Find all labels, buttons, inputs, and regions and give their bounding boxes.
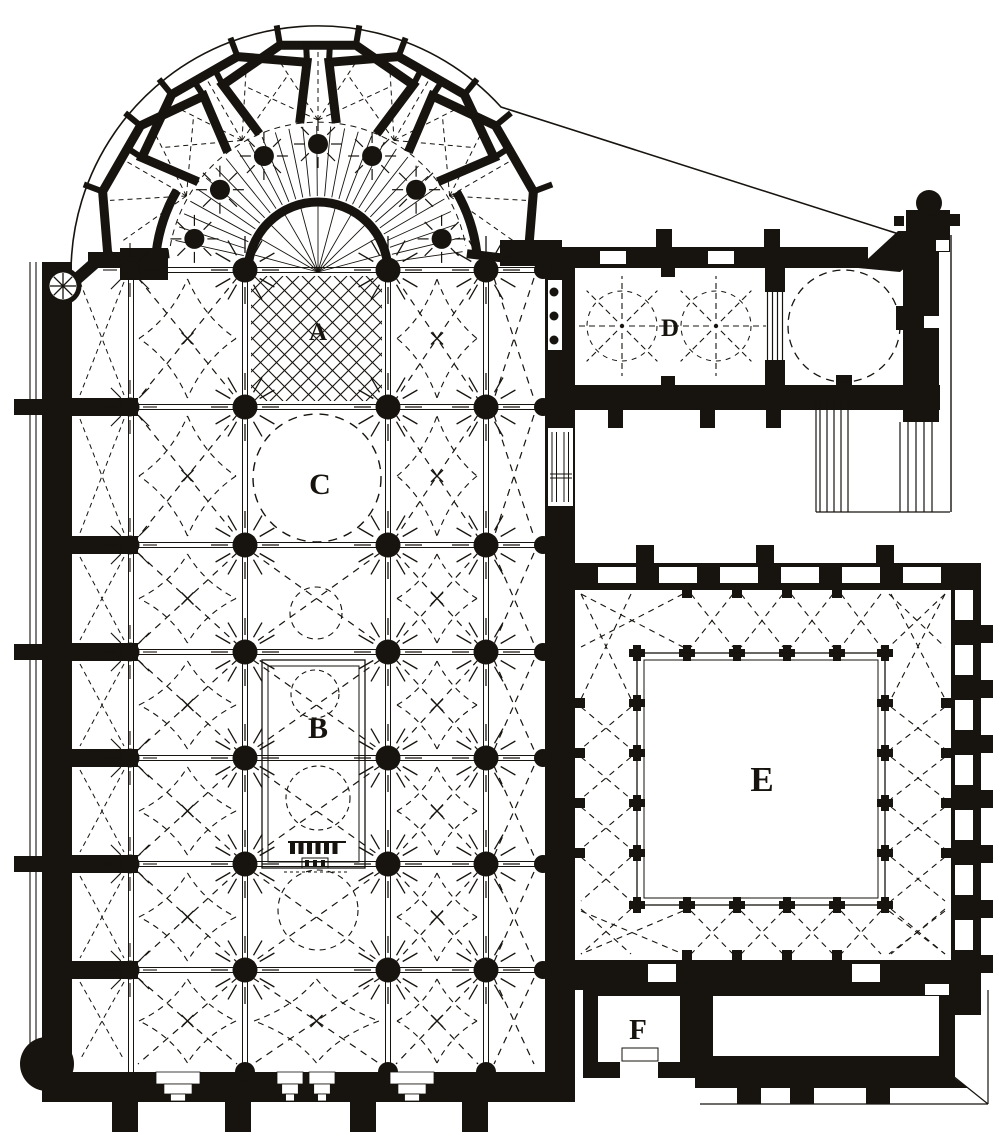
pier-spike bbox=[457, 390, 472, 399]
nave-pier bbox=[376, 258, 401, 283]
pier-spike bbox=[216, 279, 231, 288]
walk-respond bbox=[732, 588, 742, 598]
corridor-window bbox=[708, 251, 734, 264]
star-vault-rib bbox=[721, 331, 752, 362]
pier-spike bbox=[254, 560, 263, 575]
pier-spike bbox=[495, 729, 504, 744]
nave-pier bbox=[474, 958, 499, 983]
pier-spike bbox=[495, 667, 504, 682]
pier-spike bbox=[397, 516, 406, 531]
cloister-buttress bbox=[981, 845, 993, 863]
room-f-threshold bbox=[622, 1048, 658, 1061]
pier-spike bbox=[327, 127, 335, 135]
pier-spike bbox=[371, 879, 380, 894]
chapel-buttress bbox=[497, 113, 511, 124]
pier-spike bbox=[469, 516, 478, 531]
pier-spike bbox=[457, 847, 472, 856]
organ-pipe bbox=[305, 860, 309, 866]
pier-spike bbox=[403, 279, 418, 288]
chapel-rib bbox=[164, 140, 242, 147]
pier-spike bbox=[260, 953, 275, 962]
cloister-vault bbox=[691, 911, 733, 954]
pier-spike bbox=[397, 422, 406, 437]
wall-dot bbox=[550, 288, 559, 297]
pier-spike bbox=[457, 873, 472, 882]
wall-respond-pier bbox=[534, 855, 552, 873]
chapel-buttress bbox=[535, 184, 552, 190]
chapel-buttress bbox=[466, 79, 477, 93]
pier-spike bbox=[501, 979, 516, 988]
pier-spike bbox=[260, 979, 275, 988]
pier-spike bbox=[216, 554, 231, 563]
pier-spike bbox=[495, 378, 504, 393]
wall-respond-pier bbox=[534, 643, 552, 661]
apse-spoke bbox=[318, 255, 382, 272]
pier-spike bbox=[111, 526, 121, 536]
pier-spike bbox=[403, 390, 418, 399]
pier-spike bbox=[254, 667, 263, 682]
pier-spike bbox=[260, 279, 275, 288]
cloister-vault bbox=[581, 594, 631, 699]
pier-spike bbox=[111, 416, 121, 426]
pier-spike bbox=[403, 979, 418, 988]
pier-spike bbox=[359, 416, 374, 425]
pier-spike bbox=[403, 661, 418, 670]
pier-spike bbox=[139, 633, 149, 643]
pier-spike bbox=[403, 635, 418, 644]
cloister-buttress bbox=[981, 735, 993, 753]
pier-spike bbox=[228, 879, 237, 894]
cloister-window bbox=[955, 865, 973, 895]
pier-spike bbox=[139, 739, 149, 749]
pier-spike bbox=[254, 729, 263, 744]
ambulatory-pier bbox=[362, 146, 382, 166]
hall-interior bbox=[713, 996, 939, 1056]
choir-enclosure bbox=[262, 660, 365, 868]
cloister-buttress bbox=[756, 545, 774, 563]
ambulatory-pier bbox=[432, 229, 452, 249]
cloister-vault bbox=[581, 594, 683, 647]
walk-respond bbox=[732, 950, 742, 960]
turret-knob bbox=[916, 190, 942, 216]
cloister-window bbox=[955, 645, 973, 675]
pier-spike bbox=[359, 635, 374, 644]
pier-spike bbox=[228, 667, 237, 682]
pier-spike bbox=[359, 661, 374, 670]
nave-pier bbox=[376, 395, 401, 420]
pier-spike bbox=[228, 941, 237, 956]
pier-spike bbox=[501, 741, 516, 750]
west-aisle-wall bbox=[42, 262, 72, 1075]
portal-step bbox=[314, 1084, 331, 1094]
pier-spike bbox=[495, 835, 504, 850]
pier-spike bbox=[371, 560, 380, 575]
pier-spike bbox=[216, 253, 231, 262]
portal-step bbox=[309, 1072, 335, 1084]
pier-spike bbox=[111, 979, 121, 989]
ambulatory-pier bbox=[210, 180, 230, 200]
cloister-window bbox=[955, 810, 973, 840]
pier-spike bbox=[111, 661, 121, 671]
pier-spike bbox=[355, 165, 363, 173]
pier-spike bbox=[425, 248, 433, 256]
south-facade-wall bbox=[42, 1072, 575, 1102]
cloister-window bbox=[852, 964, 880, 982]
pier-spike bbox=[359, 847, 374, 856]
pier-spike bbox=[204, 248, 212, 256]
pier-spike bbox=[260, 635, 275, 644]
pier-spike bbox=[495, 941, 504, 956]
pier-spike bbox=[457, 953, 472, 962]
chapter-circle bbox=[788, 270, 900, 382]
pier-spike bbox=[501, 635, 516, 644]
ambulatory-pier bbox=[254, 146, 274, 166]
pier-spike bbox=[501, 767, 516, 776]
chapel-wall bbox=[156, 191, 177, 253]
pier-spike bbox=[139, 767, 149, 777]
walk-respond bbox=[782, 588, 792, 598]
wall-respond-pier bbox=[534, 398, 552, 416]
ambulatory-fan-rib bbox=[303, 127, 310, 197]
respond-pier bbox=[121, 261, 140, 280]
star-vault-rib bbox=[587, 331, 618, 362]
buttress bbox=[14, 644, 42, 660]
pier-spike bbox=[177, 222, 185, 230]
room-label-c: C bbox=[309, 468, 331, 501]
nave-pier bbox=[233, 395, 258, 420]
pier-spike bbox=[397, 667, 406, 682]
wall-respond-pier bbox=[534, 536, 552, 554]
cloister-buttress bbox=[876, 545, 894, 563]
pier-spike bbox=[425, 173, 433, 181]
pier-spike bbox=[457, 661, 472, 670]
apse-spoke bbox=[318, 208, 335, 272]
nave-pier bbox=[376, 958, 401, 983]
buttress bbox=[14, 856, 42, 872]
pier-spike bbox=[403, 847, 418, 856]
pier-spike bbox=[203, 199, 211, 207]
pier-spike bbox=[216, 661, 231, 670]
wall-window bbox=[924, 316, 939, 328]
nave-pier bbox=[474, 640, 499, 665]
chapel-buttress bbox=[84, 184, 101, 190]
walk-respond bbox=[575, 748, 585, 758]
pier-spike bbox=[371, 729, 380, 744]
chapel-buttress bbox=[159, 79, 170, 93]
cloister-buttress bbox=[981, 955, 993, 973]
pier-spike bbox=[501, 873, 516, 882]
facade-buttress bbox=[462, 1102, 488, 1132]
nave-pier bbox=[474, 746, 499, 771]
walk-respond bbox=[941, 798, 951, 808]
respond-pier bbox=[121, 961, 140, 980]
room-label-b: B bbox=[308, 712, 328, 745]
net-line bbox=[126, 276, 251, 401]
hall-buttress bbox=[737, 1088, 761, 1104]
ambulatory-pier bbox=[308, 134, 328, 154]
pier-spike bbox=[469, 667, 478, 682]
cathedral-floor-plan: A B C D E F bbox=[0, 0, 1000, 1139]
pier-spike bbox=[177, 248, 185, 256]
cloister-window bbox=[659, 567, 697, 583]
pier-spike bbox=[397, 560, 406, 575]
pier-spike bbox=[403, 741, 418, 750]
pier-spike bbox=[111, 951, 121, 961]
corner-turret bbox=[20, 1037, 74, 1091]
walk-respond bbox=[941, 748, 951, 758]
pier-spike bbox=[403, 416, 418, 425]
pier-spike bbox=[111, 554, 121, 564]
pier-spike bbox=[254, 422, 263, 437]
pier-spike bbox=[228, 560, 237, 575]
pier-spike bbox=[228, 729, 237, 744]
pier-spike bbox=[457, 741, 472, 750]
pier-spike bbox=[495, 422, 504, 437]
pier-spike bbox=[501, 390, 516, 399]
pier-spike bbox=[139, 873, 149, 883]
cloister-window bbox=[955, 755, 973, 785]
star-vault-rib bbox=[721, 291, 752, 322]
walk-respond bbox=[832, 950, 842, 960]
hall-buttress bbox=[790, 1088, 814, 1104]
vault-lierne bbox=[317, 1021, 380, 1063]
wall-respond-pier bbox=[534, 749, 552, 767]
pier-spike bbox=[216, 390, 231, 399]
ambulatory-fan-rib bbox=[384, 199, 445, 234]
pier-spike bbox=[501, 661, 516, 670]
pier-spike bbox=[425, 199, 433, 207]
pier-spike bbox=[457, 767, 472, 776]
net-line bbox=[142, 276, 267, 401]
portal-step bbox=[164, 1084, 192, 1094]
pier-spike bbox=[111, 845, 121, 855]
pier-spike bbox=[469, 422, 478, 437]
pier-spike bbox=[359, 979, 374, 988]
chapel-buttress bbox=[125, 113, 139, 124]
pier-spike bbox=[359, 279, 374, 288]
pier-spike bbox=[457, 554, 472, 563]
pier-spike bbox=[254, 879, 263, 894]
portal-step bbox=[282, 1084, 299, 1094]
cloister-window bbox=[648, 964, 676, 982]
pier-spike bbox=[397, 773, 406, 788]
pier-spike bbox=[273, 165, 281, 173]
pier-spike bbox=[216, 528, 231, 537]
star-vault-rib bbox=[681, 291, 712, 322]
chapel-rib bbox=[186, 118, 193, 196]
cloister-buttress bbox=[981, 900, 993, 918]
star-vault-rib bbox=[627, 331, 658, 362]
pier-spike bbox=[139, 554, 149, 564]
cloister-window bbox=[598, 567, 636, 583]
ambulatory-fan-rib bbox=[289, 129, 303, 198]
pier-spike bbox=[399, 173, 407, 181]
organ-pipe bbox=[316, 842, 321, 854]
cloister-vault bbox=[741, 911, 783, 954]
pier-spike bbox=[457, 635, 472, 644]
vault-lierne bbox=[397, 279, 437, 339]
pier-spike bbox=[501, 279, 516, 288]
chapel-vault-rib bbox=[80, 557, 124, 640]
cloister-buttress bbox=[981, 680, 993, 698]
pier-spike bbox=[301, 153, 309, 161]
pier-spike bbox=[397, 879, 406, 894]
pier-spike bbox=[403, 528, 418, 537]
pier-spike bbox=[216, 767, 231, 776]
grille-pier bbox=[765, 360, 785, 385]
walk-respond bbox=[575, 798, 585, 808]
portal-step bbox=[286, 1094, 295, 1101]
northeast-wall bbox=[903, 245, 939, 422]
pier-spike bbox=[371, 422, 380, 437]
wall-dot bbox=[550, 312, 559, 321]
east-nave-wall bbox=[545, 248, 575, 1075]
nave-pier bbox=[376, 746, 401, 771]
net-line bbox=[142, 276, 267, 401]
pier-spike bbox=[359, 953, 374, 962]
facade-buttress bbox=[112, 1102, 138, 1132]
pier-spike bbox=[254, 773, 263, 788]
nave-pier bbox=[474, 258, 499, 283]
cloister-vault bbox=[791, 911, 833, 954]
pier-spike bbox=[371, 773, 380, 788]
pier-spike bbox=[457, 979, 472, 988]
respond-pier bbox=[121, 398, 140, 417]
respond-pier bbox=[121, 749, 140, 768]
chapel-wall bbox=[457, 192, 477, 253]
star-vault-rib bbox=[587, 291, 618, 322]
pier-spike bbox=[495, 879, 504, 894]
pier-spike bbox=[495, 516, 504, 531]
walk-respond bbox=[941, 848, 951, 858]
chapel-wall bbox=[329, 57, 494, 182]
nave-pier bbox=[376, 533, 401, 558]
star-vault-rib bbox=[627, 291, 658, 322]
turret-step bbox=[894, 216, 904, 226]
portal-step bbox=[318, 1094, 327, 1101]
wall-respond-pier bbox=[534, 961, 552, 979]
respond-pier bbox=[121, 855, 140, 874]
room-label-d: D bbox=[661, 315, 679, 342]
room-f-door bbox=[620, 1062, 658, 1078]
nave-pier bbox=[233, 958, 258, 983]
choir-circle bbox=[286, 766, 350, 830]
cloister-window bbox=[955, 700, 973, 730]
organ-pipe bbox=[333, 842, 338, 854]
pier-spike bbox=[139, 951, 149, 961]
vault-lierne bbox=[437, 416, 477, 476]
nave-pier bbox=[474, 533, 499, 558]
pier-spike bbox=[371, 941, 380, 956]
pier-spike bbox=[495, 285, 504, 300]
portal-step bbox=[171, 1094, 186, 1101]
chapel-rib bbox=[242, 76, 287, 140]
pier-spike bbox=[457, 528, 472, 537]
pier-spike bbox=[260, 390, 275, 399]
pier-spike bbox=[451, 248, 459, 256]
cloister-buttress bbox=[981, 790, 993, 808]
corridor-window bbox=[600, 251, 626, 264]
cloister-buttress bbox=[636, 545, 654, 563]
d-room-respond bbox=[661, 268, 675, 277]
room-label-a: A bbox=[309, 319, 327, 346]
organ-pipe bbox=[313, 860, 317, 866]
nave-pier bbox=[233, 746, 258, 771]
pier-spike bbox=[397, 985, 406, 1000]
pier-spike bbox=[371, 667, 380, 682]
pier-spike bbox=[359, 741, 374, 750]
pier-spike bbox=[228, 773, 237, 788]
vault-circle bbox=[290, 587, 342, 639]
vault-lierne bbox=[437, 279, 477, 339]
pier-spike bbox=[469, 985, 478, 1000]
pier-spike bbox=[254, 516, 263, 531]
respond-pier bbox=[121, 536, 140, 555]
pier-spike bbox=[371, 516, 380, 531]
pier-spike bbox=[403, 953, 418, 962]
pier-spike bbox=[495, 985, 504, 1000]
pier-spike bbox=[469, 879, 478, 894]
chapel-wall bbox=[142, 57, 307, 182]
nave-pier bbox=[376, 852, 401, 877]
nave-pier bbox=[233, 258, 258, 283]
nave-pier bbox=[233, 533, 258, 558]
facade-buttress bbox=[350, 1102, 376, 1132]
turret-window bbox=[936, 240, 949, 251]
cloister-window bbox=[720, 567, 758, 583]
apse-spoke bbox=[301, 208, 318, 272]
buttress bbox=[14, 399, 42, 415]
star-vault-rib bbox=[681, 331, 712, 362]
chapel-rib bbox=[450, 196, 514, 241]
pier-spike bbox=[111, 279, 121, 289]
engaged-pier bbox=[476, 1062, 496, 1082]
pier-spike bbox=[139, 979, 149, 989]
corridor-buttress bbox=[656, 229, 672, 247]
vault-circle bbox=[278, 870, 358, 950]
pier-spike bbox=[254, 623, 263, 638]
cloister-window bbox=[955, 590, 973, 620]
pier-spike bbox=[469, 560, 478, 575]
cloister-vault bbox=[741, 911, 783, 954]
pier-spike bbox=[355, 139, 363, 147]
cloister-vault bbox=[791, 911, 833, 954]
hall-window bbox=[925, 984, 949, 995]
wall-respond-pier bbox=[534, 261, 552, 279]
ambulatory-pier bbox=[406, 180, 426, 200]
organ-pipe bbox=[321, 860, 325, 866]
pier-spike bbox=[381, 139, 389, 147]
wall-dot bbox=[550, 336, 559, 345]
pier-spike bbox=[228, 985, 237, 1000]
chapel-buttress bbox=[277, 25, 280, 43]
pier-spike bbox=[111, 767, 121, 777]
cloister-window bbox=[842, 567, 880, 583]
pier-spike bbox=[371, 623, 380, 638]
pier-spike bbox=[403, 873, 418, 882]
corridor-pier-stub bbox=[766, 410, 781, 428]
pier-spike bbox=[111, 873, 121, 883]
walk-respond bbox=[782, 950, 792, 960]
turret-step bbox=[948, 214, 960, 226]
pier-spike bbox=[397, 285, 406, 300]
walk-respond bbox=[682, 588, 692, 598]
pier-spike bbox=[228, 285, 237, 300]
pier-spike bbox=[260, 416, 275, 425]
pier-spike bbox=[254, 835, 263, 850]
pier-spike bbox=[111, 633, 121, 643]
pier-spike bbox=[359, 554, 374, 563]
